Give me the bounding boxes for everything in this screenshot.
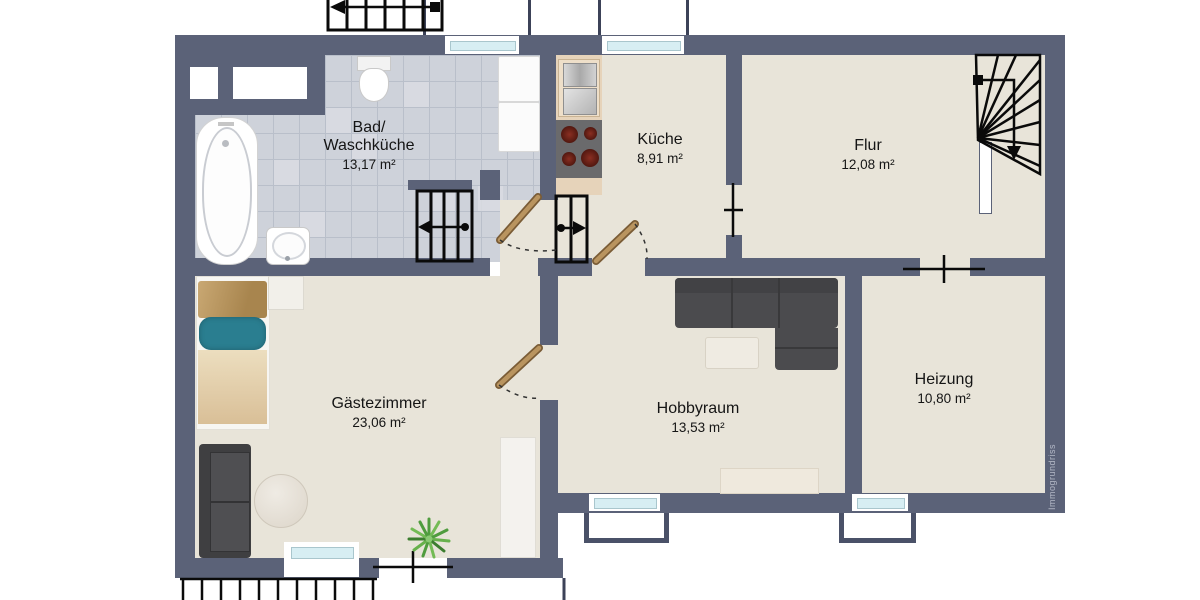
floor-landing <box>500 200 558 258</box>
doorway-landing-gaeste <box>500 258 538 276</box>
room-area: 12,08 m² <box>808 157 928 172</box>
sofa <box>199 444 251 558</box>
sideboard <box>720 468 819 494</box>
wall-stub-landing <box>480 170 500 200</box>
wall-mid <box>538 258 592 276</box>
wall-mid <box>742 258 920 276</box>
tile-accent <box>404 82 429 107</box>
light-well <box>584 513 669 543</box>
room-name-line2: Waschküche <box>299 137 439 155</box>
wall-niche <box>233 67 307 99</box>
wall-gaeste-hobby <box>540 400 558 578</box>
room-name: Gästezimmer <box>309 395 449 413</box>
room-area: 13,17 m² <box>299 157 439 172</box>
room-name: Bad/ <box>299 119 439 137</box>
room-label-kueche: Küche 8,91 m² <box>600 131 720 166</box>
stove-burner <box>561 126 578 143</box>
light-well <box>423 0 426 35</box>
room-label-gaestezimmer: Gästezimmer 23,06 m² <box>309 395 449 430</box>
room-label-heizung: Heizung 10,80 m² <box>884 371 1004 406</box>
nightstand <box>268 276 304 310</box>
room-label-bad: Bad/ Waschküche 13,17 m² <box>299 119 439 172</box>
window-glass <box>607 41 681 51</box>
kitchen-sink-unit <box>558 59 600 117</box>
light-well <box>598 0 601 35</box>
hand-basin <box>266 227 310 265</box>
wall-exterior-bottom-left <box>175 558 563 578</box>
round-table <box>254 474 308 528</box>
window-glass <box>857 498 905 509</box>
bed <box>196 276 270 430</box>
room-area: 10,80 m² <box>884 391 1004 406</box>
stove-burner <box>584 127 597 140</box>
wall-exterior-left <box>175 35 195 578</box>
doorway-gaeste-hobby <box>540 345 558 400</box>
wall-mid <box>970 258 1045 276</box>
wall-hobby-heizung <box>845 276 862 493</box>
window-glass <box>291 547 354 559</box>
basin-drain <box>285 256 290 261</box>
wall-gaeste-hobby <box>540 276 558 345</box>
stove-burner <box>562 152 576 166</box>
room-name: Hobbyraum <box>628 400 768 418</box>
kitchen-sink-drainer <box>563 63 597 87</box>
washer-dryer-upper <box>498 56 540 102</box>
corner-sofa-seam <box>731 278 733 328</box>
bed-pillow <box>199 317 266 350</box>
stair-rail-wall <box>979 142 992 214</box>
corner-sofa-top <box>675 278 838 328</box>
coffee-table <box>705 337 759 369</box>
kitchen-counter <box>556 55 602 195</box>
corner-sofa-chaise <box>775 328 838 370</box>
tile-accent <box>274 160 299 185</box>
room-label-flur: Flur 12,08 m² <box>808 137 928 172</box>
watermark: Immogrundriss <box>1047 400 1057 510</box>
room-area: 8,91 m² <box>600 151 720 166</box>
light-well <box>528 0 531 35</box>
doorway-flur-heizung <box>920 258 970 276</box>
room-name: Heizung <box>884 371 1004 389</box>
wall-kueche-flur <box>726 235 742 258</box>
light-well <box>839 513 916 543</box>
corner-sofa-seam <box>775 347 838 349</box>
bed-blanket <box>198 350 267 424</box>
wall-niche <box>190 67 218 99</box>
stove-top <box>556 120 602 178</box>
room-name: Küche <box>600 131 720 149</box>
washer-dryer-lower <box>498 102 540 152</box>
room-area: 23,06 m² <box>309 415 449 430</box>
room-label-hobbyraum: Hobbyraum 13,53 m² <box>628 400 768 435</box>
toilet-bowl <box>359 68 389 102</box>
wall-stub-stairs <box>408 180 472 190</box>
bathtub <box>196 117 258 265</box>
room-name: Flur <box>808 137 928 155</box>
sofa-cushion <box>210 502 250 552</box>
corner-sofa-seam <box>778 278 780 328</box>
shelf <box>500 437 536 558</box>
room-area: 13,53 m² <box>628 420 768 435</box>
light-well <box>686 0 689 35</box>
doorway-kueche-flur <box>726 185 742 235</box>
wall-mid <box>645 258 742 276</box>
bathtub-faucet <box>218 122 234 126</box>
doorway-landing-hobby <box>592 258 645 276</box>
window-glass <box>594 498 657 509</box>
kitchen-sink-bowl <box>563 88 597 115</box>
floorplan: Bad/ Waschküche 13,17 m² Küche 8,91 m² F… <box>0 0 1200 600</box>
stove-burner <box>581 149 599 167</box>
sofa-cushion <box>210 452 250 502</box>
bed-headboard <box>198 281 267 318</box>
window-glass <box>450 41 516 51</box>
exterior-stairs-bottom <box>180 578 564 600</box>
bathtub-drain <box>222 140 229 147</box>
wall-kueche-flur <box>726 55 742 185</box>
doorway-exterior <box>379 558 447 578</box>
corner-sofa-back <box>675 278 838 293</box>
